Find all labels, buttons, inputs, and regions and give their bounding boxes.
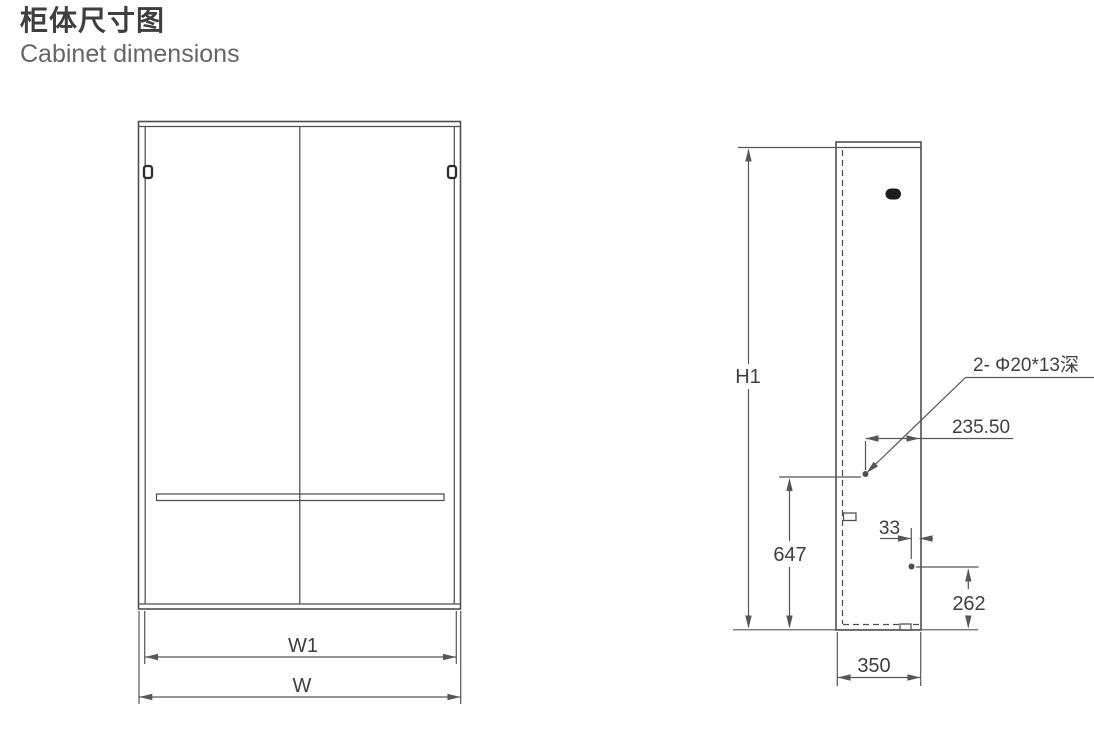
front-view bbox=[139, 122, 461, 610]
hole-annotation-label: 2- Φ20*13深 bbox=[973, 354, 1079, 376]
dim23550-label: 235.50 bbox=[952, 417, 1010, 438]
dim647-arrow-down bbox=[786, 616, 792, 629]
dim262-label: 262 bbox=[952, 593, 985, 615]
dim647-arrow-up bbox=[786, 478, 792, 491]
right-hinge-clip-icon bbox=[448, 166, 456, 178]
w1-arrow-left bbox=[145, 654, 158, 660]
cam-lock-icon bbox=[886, 189, 902, 200]
dimension-33: 33 bbox=[879, 518, 933, 559]
dimension-350: 350 bbox=[837, 632, 920, 686]
dim33-label: 33 bbox=[879, 518, 900, 539]
drawing-canvas: 柜体尺寸图 Cabinet dimensions bbox=[0, 0, 1094, 751]
w-arrow-left bbox=[139, 694, 152, 700]
w1-dimension-label: W1 bbox=[288, 635, 318, 657]
dim23550-arrow-left bbox=[866, 435, 879, 441]
drill-hole-marker-lower bbox=[909, 564, 915, 570]
w1-arrow-right bbox=[443, 654, 456, 660]
side-outer-outline bbox=[836, 142, 921, 630]
w-arrow-right bbox=[447, 694, 460, 700]
left-hinge-clip-icon bbox=[144, 166, 152, 178]
side-view bbox=[836, 142, 921, 630]
leader-diagonal-line bbox=[868, 378, 966, 472]
dim262-arrow-down bbox=[965, 616, 971, 629]
h1-dimension-label: H1 bbox=[735, 366, 761, 388]
dim262-arrow-up bbox=[965, 569, 971, 582]
dim23550-arrow-right bbox=[907, 435, 920, 441]
dim350-label: 350 bbox=[857, 655, 890, 677]
cabinet-dimension-drawing: W1 W bbox=[0, 0, 1094, 751]
h1-arrow-down bbox=[745, 616, 751, 629]
dimension-647: 647 bbox=[773, 477, 861, 629]
dim350-arrow-left bbox=[838, 674, 851, 680]
dimension-262: 262 bbox=[916, 567, 986, 629]
hole-annotation: 2- Φ20*13深 bbox=[867, 354, 1094, 473]
dim350-arrow-right bbox=[907, 674, 920, 680]
dimension-235-50: 235.50 bbox=[866, 417, 1014, 470]
mid-fitting-notch bbox=[844, 513, 857, 521]
dim647-label: 647 bbox=[773, 544, 806, 566]
h1-arrow-up bbox=[745, 149, 751, 162]
w-dimension-label: W bbox=[293, 675, 312, 697]
dimension-w1: W1 bbox=[145, 611, 457, 664]
bottom-fitting-notch bbox=[900, 624, 911, 630]
